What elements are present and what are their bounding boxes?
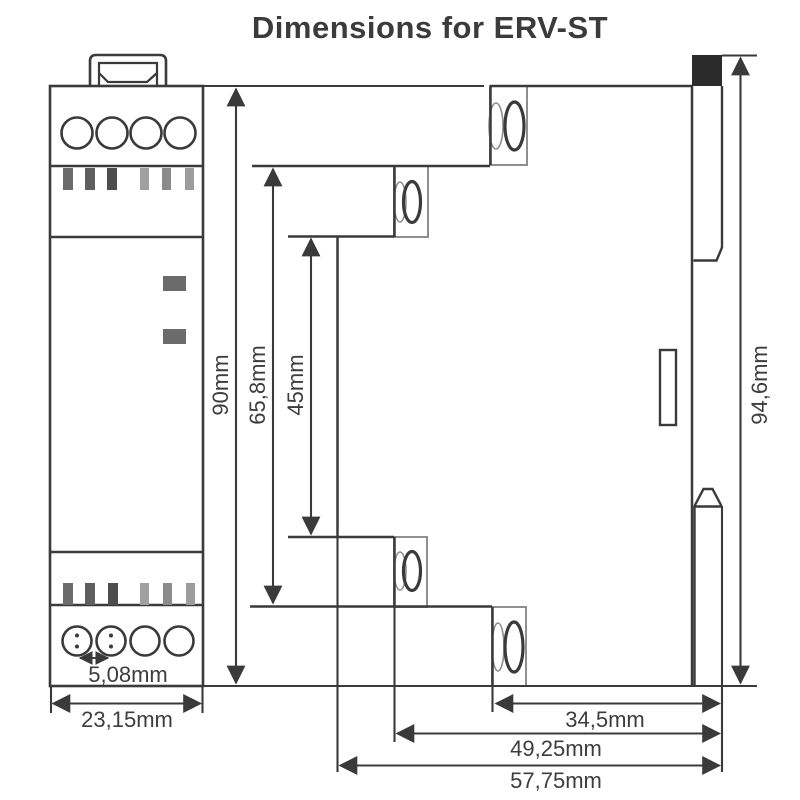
terminal-bar — [85, 583, 95, 605]
front-view — [50, 55, 203, 686]
terminal-bar — [63, 583, 73, 605]
terminal-oval — [505, 622, 523, 672]
terminal-bar — [186, 583, 195, 605]
rail-slot — [660, 350, 676, 425]
top-tab-outer — [90, 55, 166, 85]
terminal-bar — [107, 168, 117, 190]
terminal-ovals — [394, 102, 524, 672]
dimension-label-depth-total: 57,75mm — [510, 770, 602, 792]
din-hook — [694, 86, 723, 261]
led-indicator — [163, 276, 186, 291]
dimension-label-depth-rear: 34,5mm — [565, 709, 644, 731]
din-clip-top — [692, 55, 722, 86]
terminal-bar — [140, 583, 149, 605]
terminal-bar — [85, 168, 95, 190]
terminal-block — [394, 166, 428, 237]
dimension-label-width: 23,15mm — [81, 709, 173, 731]
dimension-label-height: 90mm — [210, 354, 232, 415]
terminal-blocks — [394, 86, 527, 686]
led-indicator — [163, 329, 186, 344]
terminal-bar — [63, 168, 73, 190]
dimension-label-height-terminals: 65,8mm — [247, 345, 269, 424]
terminal-bar — [108, 583, 118, 605]
side-view — [250, 55, 722, 686]
terminal-block — [490, 86, 527, 165]
terminal-bar — [162, 168, 171, 190]
dimension-label-height-total: 94,6mm — [749, 345, 771, 424]
din-clip-bottom — [695, 489, 722, 506]
terminal-bar — [140, 168, 149, 190]
dimension-label-height-body: 45mm — [285, 354, 307, 415]
terminal-block — [492, 607, 526, 686]
dimension-label-pitch: 5,08mm — [88, 664, 167, 686]
top-tab-inner — [99, 63, 157, 85]
terminal-bar — [185, 168, 194, 190]
dimension-label-depth-mid: 49,25mm — [510, 738, 602, 760]
terminal-oval — [492, 623, 504, 671]
terminal-oval — [505, 102, 524, 150]
terminal-bar — [163, 583, 172, 605]
